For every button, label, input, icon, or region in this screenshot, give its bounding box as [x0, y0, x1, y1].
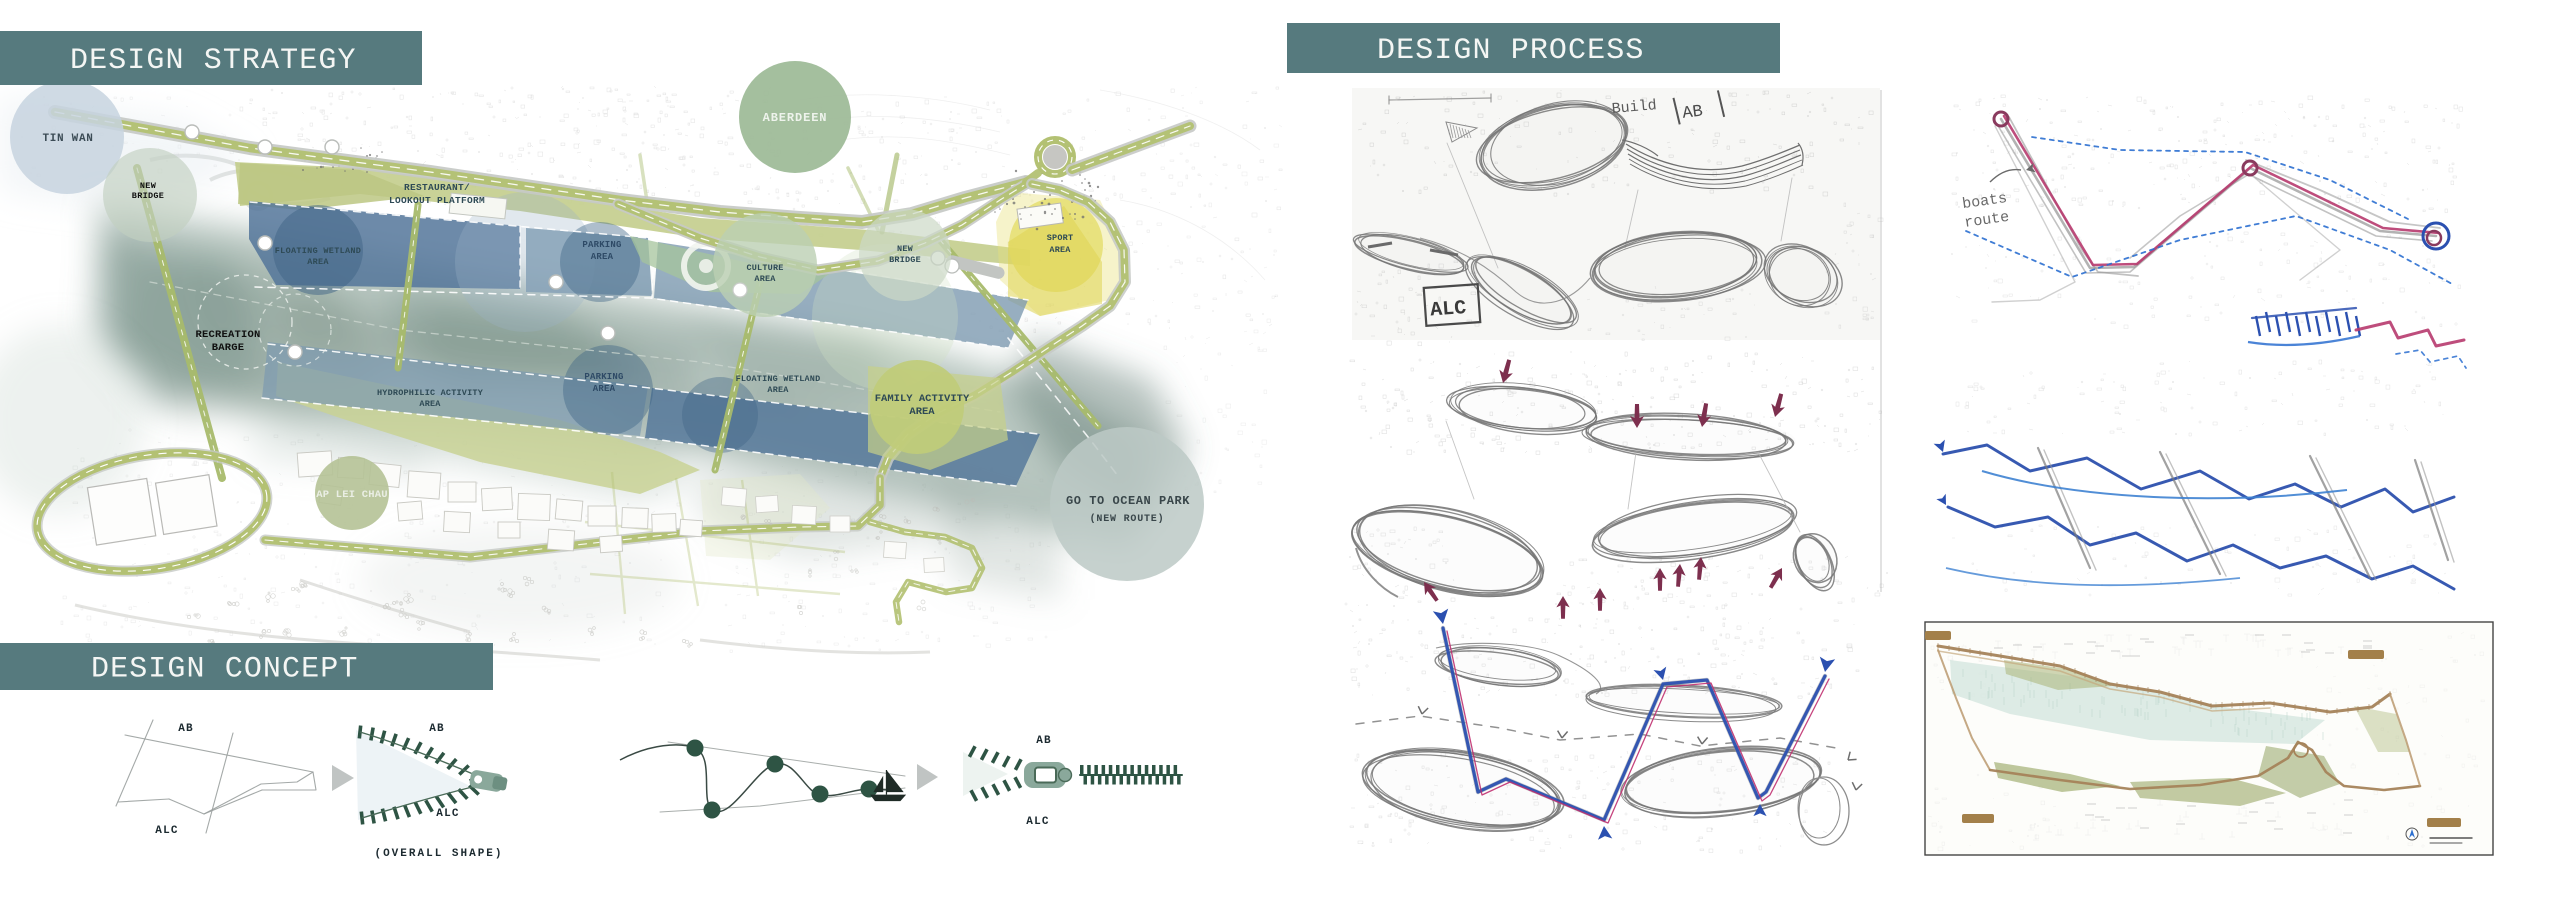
svg-text:RECREATION: RECREATION	[195, 329, 260, 341]
svg-text:SPORT: SPORT	[1047, 233, 1074, 243]
svg-text:AB: AB	[1036, 735, 1052, 747]
svg-text:CULTURE: CULTURE	[746, 263, 783, 273]
svg-text:FLOATING WETLAND: FLOATING WETLAND	[736, 374, 821, 384]
svg-text:PARKING: PARKING	[582, 240, 621, 250]
svg-text:AREA: AREA	[419, 399, 441, 409]
svg-text:LOOKOUT PLATFORM: LOOKOUT PLATFORM	[389, 195, 485, 206]
svg-text:AREA: AREA	[909, 406, 935, 418]
svg-text:AP LEI CHAU: AP LEI CHAU	[316, 489, 388, 501]
svg-text:GO TO OCEAN PARK: GO TO OCEAN PARK	[1066, 494, 1190, 508]
svg-text:NEW: NEW	[897, 244, 914, 254]
svg-text:ALC: ALC	[1026, 816, 1049, 828]
svg-text:NEW: NEW	[140, 181, 157, 191]
svg-text:TIN WAN: TIN WAN	[42, 133, 93, 145]
svg-text:AB: AB	[429, 723, 445, 735]
svg-text:(NEW ROUTE): (NEW ROUTE)	[1090, 513, 1165, 525]
svg-text:FLOATING WETLAND: FLOATING WETLAND	[275, 246, 361, 256]
svg-text:DESIGN CONCEPT: DESIGN CONCEPT	[91, 653, 358, 687]
svg-text:BRIDGE: BRIDGE	[889, 255, 921, 265]
svg-text:AB: AB	[1681, 103, 1704, 124]
svg-text:RESTAURANT/: RESTAURANT/	[404, 182, 470, 193]
svg-text:AREA: AREA	[754, 274, 776, 284]
svg-text:ABERDEEN: ABERDEEN	[763, 111, 828, 125]
svg-text:HYDROPHILIC ACTIVITY: HYDROPHILIC ACTIVITY	[377, 388, 484, 398]
svg-text:AREA: AREA	[767, 385, 789, 395]
svg-text:ALC: ALC	[1430, 297, 1468, 322]
svg-text:AREA: AREA	[1049, 245, 1071, 255]
svg-text:AB: AB	[178, 723, 194, 735]
svg-text:BARGE: BARGE	[212, 342, 245, 354]
svg-text:AREA: AREA	[307, 257, 329, 267]
svg-text:ALC: ALC	[155, 825, 178, 837]
svg-text:PARKING: PARKING	[584, 372, 623, 382]
svg-text:AREA: AREA	[591, 252, 614, 262]
svg-text:FAMILY ACTIVITY: FAMILY ACTIVITY	[875, 393, 970, 405]
svg-text:ALC: ALC	[436, 808, 459, 820]
svg-text:(OVERALL SHAPE): (OVERALL SHAPE)	[374, 848, 503, 860]
svg-text:BRIDGE: BRIDGE	[132, 191, 164, 201]
svg-text:DESIGN PROCESS: DESIGN PROCESS	[1377, 34, 1644, 68]
svg-text:DESIGN STRATEGY: DESIGN STRATEGY	[70, 44, 357, 78]
svg-text:AREA: AREA	[593, 384, 616, 394]
svg-text:route: route	[1963, 209, 2010, 232]
